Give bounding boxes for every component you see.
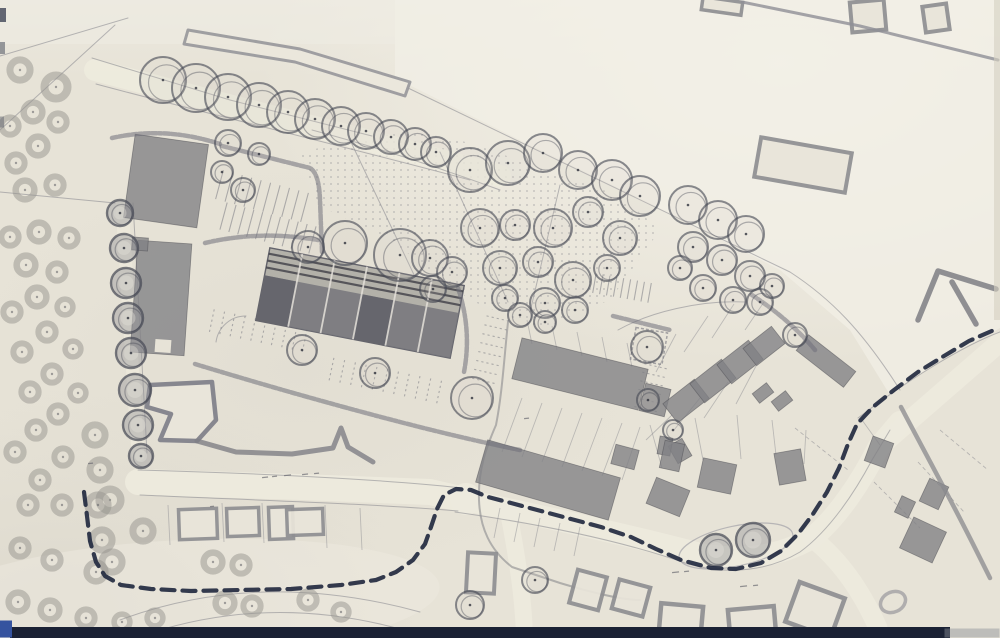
annotation-mark [524, 417, 529, 419]
tree [534, 209, 572, 247]
tree [31, 471, 48, 488]
tree [216, 594, 235, 613]
tree [70, 385, 86, 401]
tree [77, 609, 94, 626]
tree [43, 551, 60, 568]
building-notch [155, 339, 172, 353]
tree [573, 197, 603, 227]
tree [451, 377, 493, 419]
outline-house [287, 508, 324, 535]
photo-bottom-strip [10, 627, 950, 638]
tree [49, 405, 66, 422]
tree [243, 597, 260, 614]
outline-house [466, 552, 496, 593]
tree [690, 275, 716, 301]
building-dark [512, 338, 648, 410]
site-plan-photo [0, 0, 1000, 638]
tree [508, 303, 532, 327]
tree [119, 374, 151, 406]
tree [215, 130, 241, 156]
tree [248, 143, 270, 165]
tree [147, 610, 163, 626]
tree [620, 176, 660, 216]
tree [700, 534, 732, 566]
tree [48, 263, 65, 280]
tree [24, 103, 43, 122]
photo-bottom-strip-fade [945, 629, 1000, 638]
building-dark [771, 391, 793, 412]
tree [500, 210, 530, 240]
tree [555, 262, 591, 298]
tree [27, 421, 44, 438]
building-dark [646, 477, 690, 516]
building-dark [774, 449, 806, 485]
building-dark [611, 444, 639, 470]
outline-house [612, 579, 651, 616]
building-dark [900, 517, 947, 563]
tree [333, 604, 349, 620]
tree [631, 331, 663, 363]
photo-edge-mark [0, 8, 6, 22]
tree [111, 268, 141, 298]
retaining-wall [197, 428, 373, 462]
tree [28, 288, 47, 307]
building-dark [697, 458, 736, 494]
outline-house [227, 507, 260, 536]
tree [54, 448, 71, 465]
tree [448, 148, 492, 192]
tree [720, 287, 746, 313]
tree [53, 496, 70, 513]
tree [60, 229, 77, 246]
tree [522, 567, 548, 593]
building-dark [894, 496, 915, 519]
tree [668, 256, 692, 280]
tree [10, 60, 30, 80]
tree [46, 176, 63, 193]
tree [19, 496, 36, 513]
tree [360, 358, 390, 388]
tree [562, 297, 588, 323]
tree [43, 365, 60, 382]
building-dark [130, 240, 192, 355]
photo-edge-mark [0, 42, 5, 54]
tree [17, 256, 36, 275]
annotation-mark [684, 570, 689, 572]
building-dark [124, 134, 209, 227]
tree [65, 341, 81, 357]
site-plan-canvas [0, 0, 1000, 638]
tree [123, 410, 153, 440]
tree [760, 274, 784, 298]
tree [204, 553, 223, 572]
tree [292, 231, 324, 263]
tree [707, 245, 737, 275]
tree [456, 591, 484, 619]
tree [461, 209, 499, 247]
tree [523, 247, 553, 277]
tree [299, 591, 316, 608]
annotation-mark [740, 585, 747, 587]
annotation-mark [672, 571, 679, 573]
outline-house [178, 508, 217, 539]
tree [323, 221, 367, 265]
tree [637, 389, 659, 411]
tree [486, 141, 530, 185]
tree [524, 134, 562, 172]
tree [594, 255, 620, 281]
tree [287, 335, 317, 365]
tree [29, 137, 48, 156]
tree [1, 228, 18, 245]
tree [9, 593, 28, 612]
tree [783, 323, 807, 347]
tree [41, 601, 60, 620]
tree [421, 137, 451, 167]
tree [44, 75, 67, 98]
building-dark [919, 478, 949, 510]
tree [736, 523, 770, 557]
tree [603, 221, 637, 255]
building-dark [752, 383, 774, 404]
tree [231, 178, 255, 202]
photo-corner-blue [0, 621, 12, 638]
tree [663, 420, 683, 440]
annotation-mark [753, 584, 758, 586]
tree [21, 383, 38, 400]
tree [483, 251, 517, 285]
tree [88, 495, 108, 515]
building-outline-zigzag [147, 382, 216, 441]
outline-house [569, 570, 607, 611]
turning-circle [877, 587, 909, 616]
tree [107, 200, 133, 226]
tree [133, 521, 153, 541]
tree [6, 443, 23, 460]
outline-house [922, 3, 949, 32]
photo-right-edge [994, 0, 1000, 320]
tree [38, 323, 55, 340]
tree [49, 113, 66, 130]
tree [13, 343, 30, 360]
tree [85, 425, 105, 445]
photo-edge-mark [0, 117, 4, 128]
tree [211, 161, 233, 183]
tree [113, 303, 143, 333]
tree [232, 556, 249, 573]
bottomleft-wash [0, 526, 443, 638]
tree [16, 181, 35, 200]
tree [57, 299, 73, 315]
tree [3, 303, 20, 320]
tree [110, 234, 138, 262]
tree [534, 311, 556, 333]
tree [30, 223, 49, 242]
tree [129, 444, 153, 468]
tree [728, 216, 764, 252]
tree [7, 154, 24, 171]
tree [116, 338, 146, 368]
tree [420, 276, 446, 302]
tree [92, 530, 112, 550]
annotation-mark [314, 472, 319, 474]
tree [11, 539, 28, 556]
